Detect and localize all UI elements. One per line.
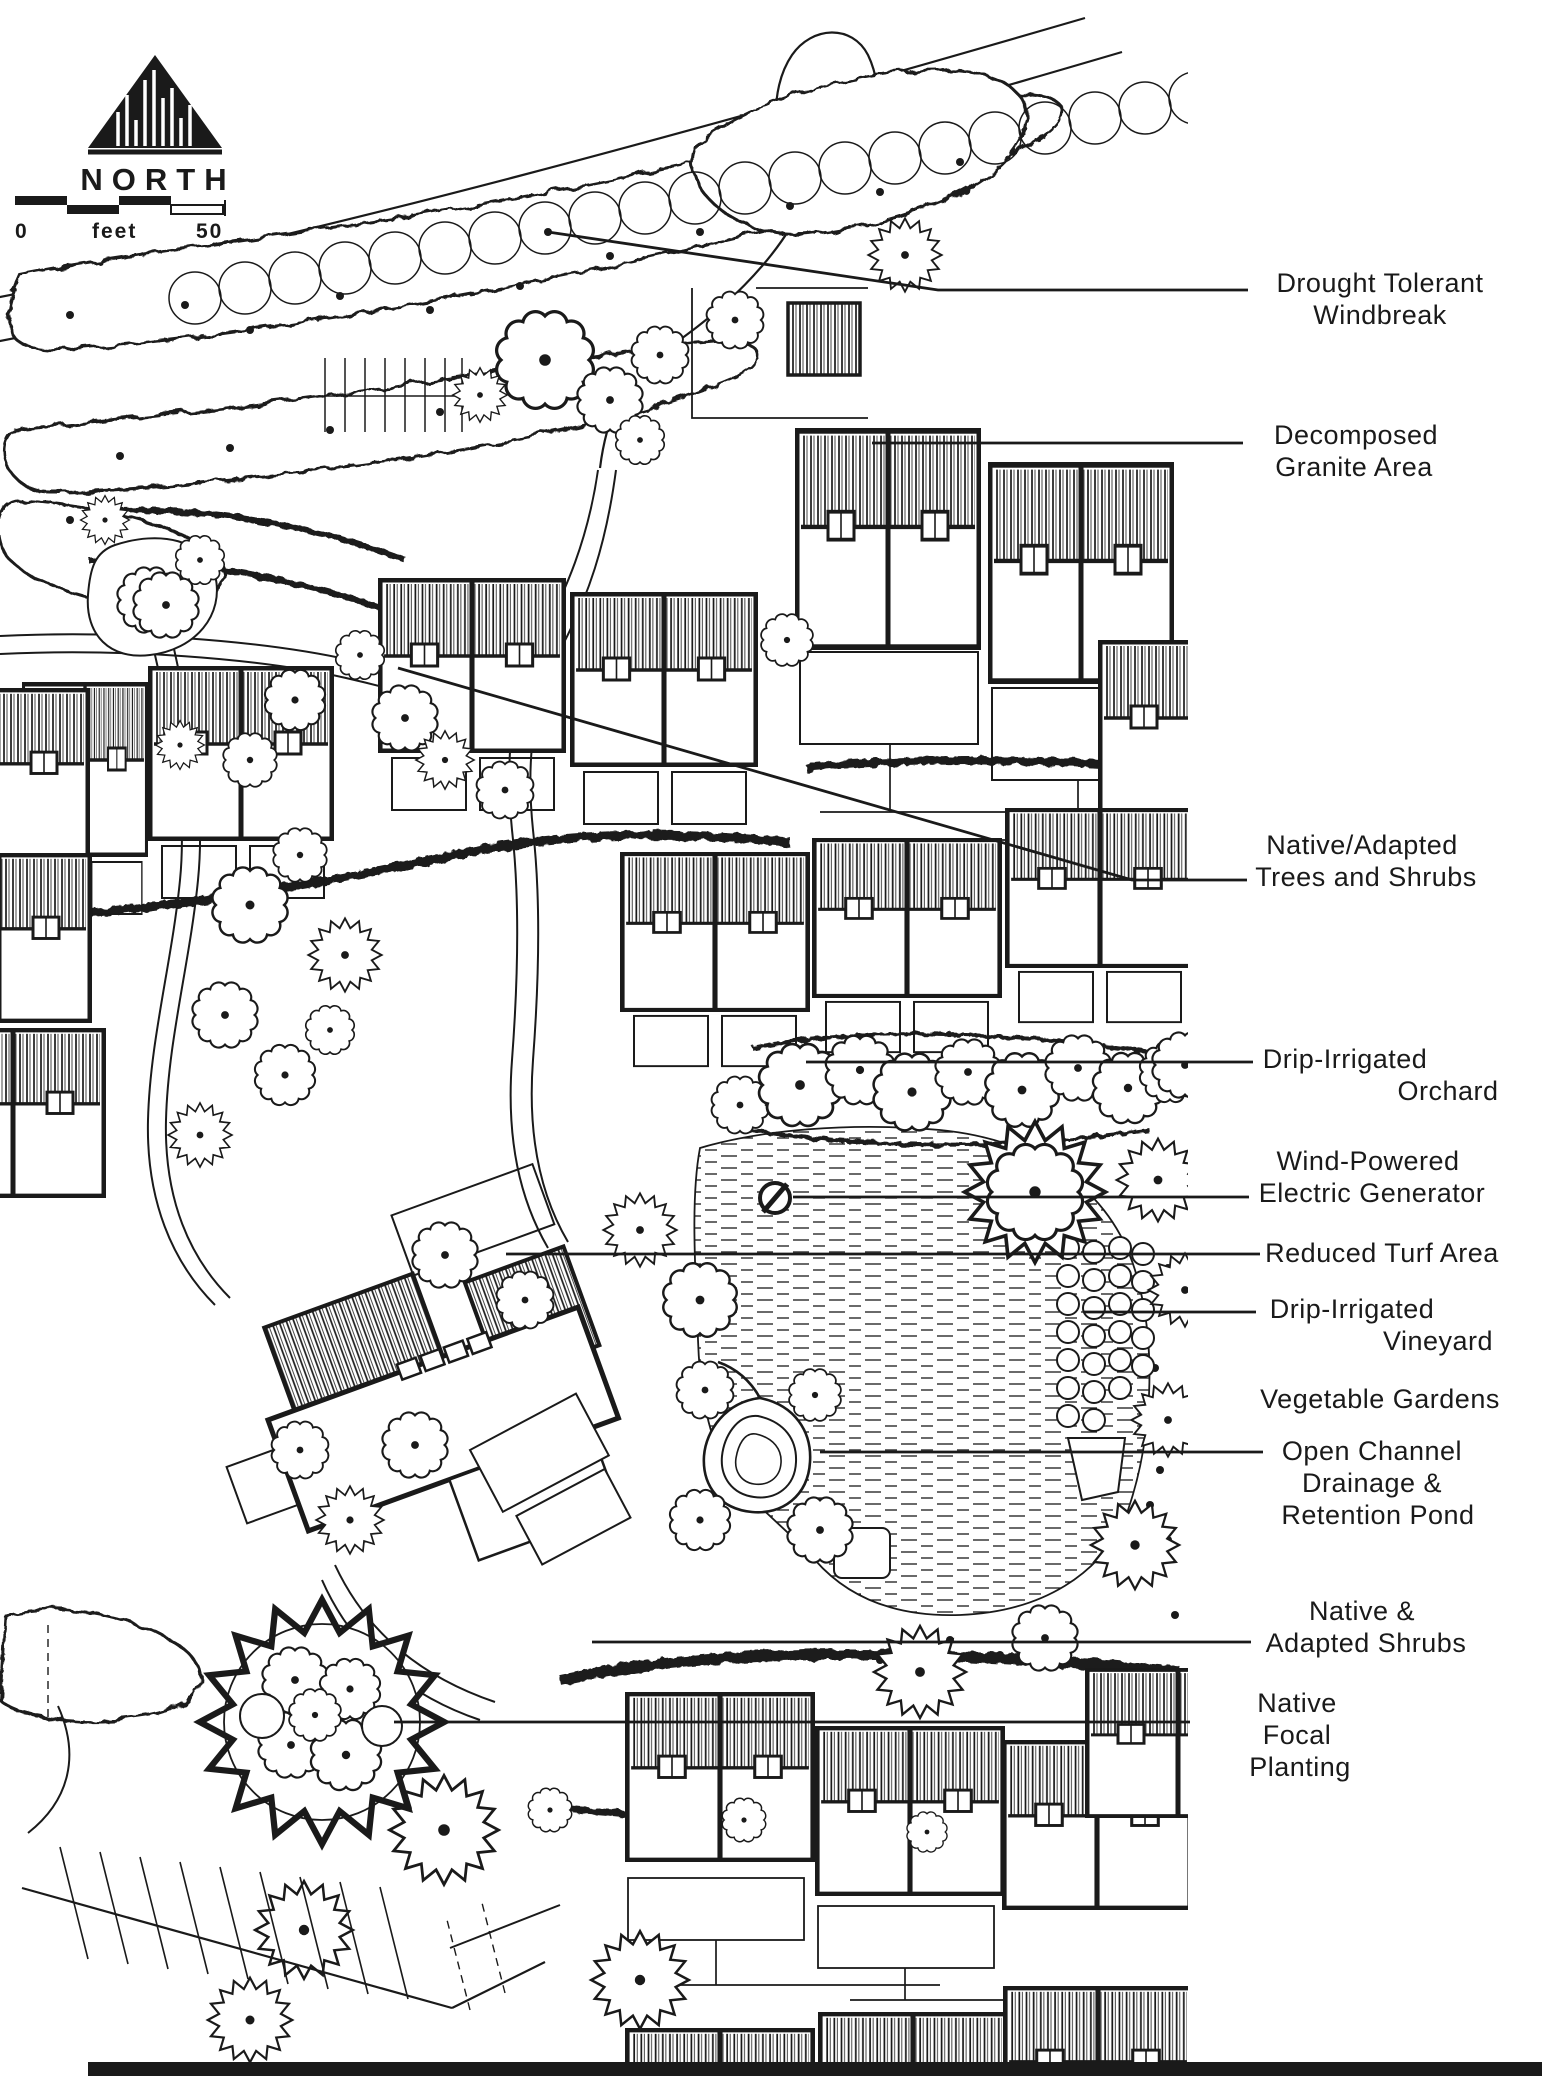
site-plan-page: Drought Tolerant Windbreak Decomposed Gr… (0, 0, 1542, 2076)
label-granite: Decomposed (1274, 420, 1438, 450)
scale-start: 0 (15, 220, 29, 243)
label-native-shrubs: Native & (1309, 1596, 1415, 1626)
label-drainage: Open Channel (1282, 1436, 1462, 1466)
label-orchard: Orchard (1397, 1076, 1498, 1106)
specimen-tree (965, 1122, 1106, 1263)
housing-pair (572, 594, 756, 765)
labels: Drought Tolerant Windbreak Decomposed Gr… (1249, 268, 1500, 1782)
housing-pair (0, 690, 88, 856)
scale-bar: 0 feet 50 (15, 196, 225, 243)
housing-pair (627, 1694, 813, 1860)
wind-generator-icon (760, 1183, 790, 1213)
patio-row (1019, 972, 1181, 1022)
label-focal: Focal (1263, 1720, 1332, 1750)
community-building (165, 1164, 654, 1631)
label-focal: Planting (1249, 1752, 1351, 1782)
housing-pair (1007, 810, 1193, 966)
north-arrow-icon: NORTH (80, 55, 235, 197)
label-focal: Native (1257, 1688, 1337, 1718)
housing-pair (817, 1728, 1003, 1894)
site-plan: Drought Tolerant Windbreak Decomposed Gr… (0, 0, 1542, 2076)
housing-pair (622, 854, 808, 1010)
map-drawing (0, 18, 1371, 2076)
north-label: NORTH (80, 162, 235, 197)
label-trees-shrubs: Trees and Shrubs (1255, 862, 1477, 892)
label-orchard: Drip-Irrigated (1263, 1044, 1428, 1074)
page-border-bar (88, 2062, 1542, 2076)
scale-end: 50 (196, 220, 223, 243)
housing-pair (814, 840, 1000, 996)
label-drainage: Retention Pond (1281, 1500, 1474, 1530)
label-turf: Reduced Turf Area (1265, 1238, 1499, 1268)
housing-pair (1087, 1670, 1269, 1817)
housing-pair (0, 855, 90, 1021)
label-granite: Granite Area (1275, 452, 1433, 482)
label-windbreak: Windbreak (1313, 300, 1447, 330)
housing-pair (0, 1030, 104, 1196)
housing-pair (797, 431, 979, 648)
housing-pair (1100, 642, 1282, 813)
label-windbreak: Drought Tolerant (1276, 268, 1483, 298)
label-drainage: Drainage & (1302, 1468, 1442, 1498)
label-vineyard: Vineyard (1383, 1326, 1493, 1356)
label-generator: Electric Generator (1259, 1178, 1486, 1208)
label-native-shrubs: Adapted Shrubs (1266, 1628, 1467, 1658)
scale-unit: feet (92, 220, 137, 243)
label-trees-shrubs: Native/Adapted (1266, 830, 1458, 860)
label-vineyard: Drip-Irrigated (1270, 1294, 1435, 1324)
patio-row (584, 772, 746, 824)
label-vegetable: Vegetable Gardens (1260, 1384, 1500, 1414)
label-generator: Wind-Powered (1276, 1146, 1459, 1176)
